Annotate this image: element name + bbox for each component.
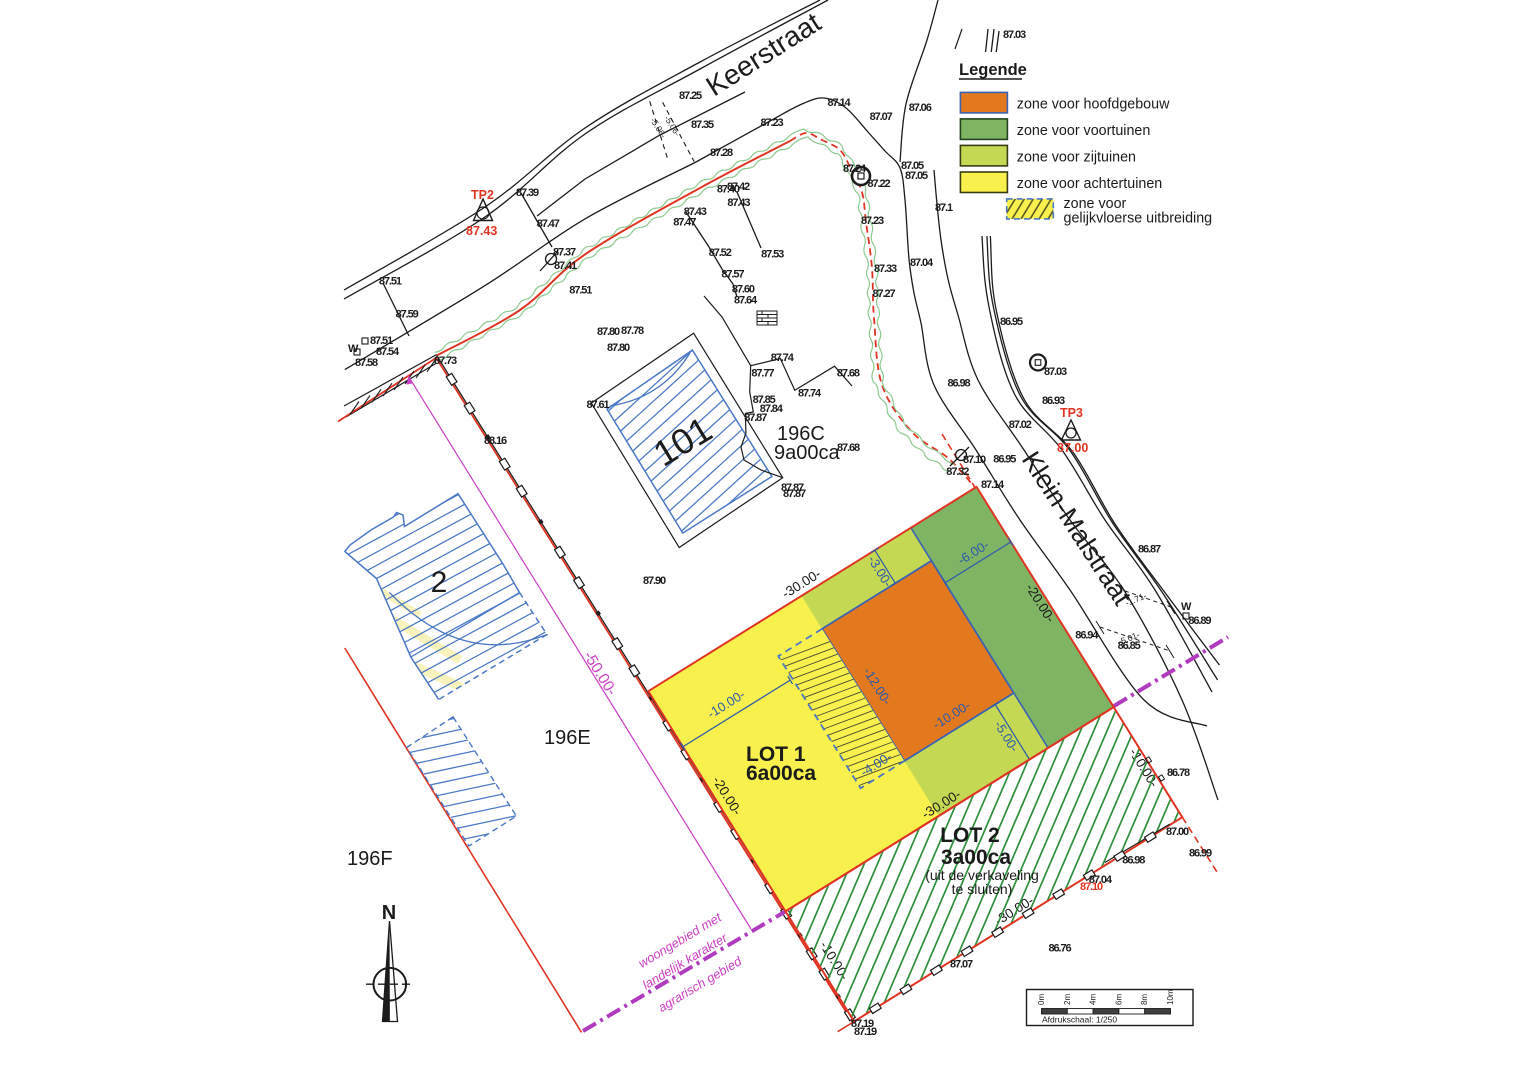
svg-text:87.04: 87.04 [910,257,934,269]
svg-text:87.80: 87.80 [607,342,630,354]
svg-text:10m: 10m [1166,989,1175,1005]
svg-text:87.68: 87.68 [837,442,860,454]
svg-text:87.02: 87.02 [1009,419,1032,431]
svg-text:88.16: 88.16 [484,435,507,447]
svg-text:87.14: 87.14 [981,479,1005,491]
svg-text:196E: 196E [544,727,591,749]
svg-text:87.33: 87.33 [874,263,897,275]
svg-text:87.07: 87.07 [950,958,973,970]
svg-text:87.41: 87.41 [554,260,577,272]
svg-text:W: W [1181,601,1192,613]
svg-text:87.74: 87.74 [798,388,822,400]
svg-text:87.07: 87.07 [870,111,893,123]
svg-text:9a00ca: 9a00ca [774,442,840,464]
svg-text:87.54: 87.54 [376,346,400,358]
svg-text:87.53: 87.53 [761,248,784,260]
svg-text:87.23: 87.23 [861,215,884,227]
svg-text:87.03: 87.03 [1003,29,1026,41]
svg-text:87.64: 87.64 [734,294,758,306]
svg-text:87.10: 87.10 [963,454,986,466]
svg-text:86.95: 86.95 [1000,316,1023,328]
svg-text:87.05: 87.05 [905,170,928,182]
svg-text:87.03: 87.03 [1044,366,1067,378]
svg-text:87.22: 87.22 [868,178,891,190]
svg-text:87.25: 87.25 [679,90,702,102]
svg-text:87.57: 87.57 [721,269,744,281]
svg-text:gelijkvloerse uitbreiding: gelijkvloerse uitbreiding [1064,211,1213,227]
svg-text:86.85: 86.85 [1118,640,1141,652]
svg-text:87.28: 87.28 [710,147,733,159]
svg-text:87.51: 87.51 [379,275,402,287]
svg-text:Legende: Legende [959,61,1027,79]
svg-text:87.51: 87.51 [569,284,592,296]
svg-text:2: 2 [431,566,448,599]
svg-text:2m: 2m [1063,994,1072,1005]
svg-text:87.1: 87.1 [935,202,953,214]
svg-text:87.80: 87.80 [597,326,620,338]
svg-text:87.87: 87.87 [783,488,806,500]
svg-text:86.99: 86.99 [1189,848,1212,860]
svg-text:87.35: 87.35 [691,119,714,131]
svg-text:87.23: 87.23 [761,117,784,129]
svg-text:3a00ca: 3a00ca [941,846,1011,869]
svg-text:87.24: 87.24 [843,163,867,175]
svg-text:87.39: 87.39 [516,187,539,199]
svg-text:87.14: 87.14 [828,97,852,109]
svg-text:86.78: 86.78 [1167,767,1190,779]
svg-text:87.47: 87.47 [673,217,696,229]
svg-text:87.47: 87.47 [537,218,560,230]
svg-text:6m: 6m [1114,994,1123,1005]
svg-text:87.78: 87.78 [621,325,644,337]
svg-text:87.27: 87.27 [873,288,896,300]
svg-text:87.52: 87.52 [709,247,732,259]
svg-text:Afdrukschaal: 1/250: Afdrukschaal: 1/250 [1042,1015,1117,1025]
svg-text:87.61: 87.61 [587,399,610,411]
svg-text:87.74: 87.74 [771,352,795,364]
svg-text:87.77: 87.77 [751,368,774,380]
svg-text:86.98: 86.98 [948,377,971,389]
svg-text:LOT 2: LOT 2 [940,824,1000,847]
svg-text:6a00ca: 6a00ca [746,762,816,785]
svg-text:86.76: 86.76 [1049,943,1072,955]
svg-text:87.68: 87.68 [837,368,860,380]
svg-text:zone voor voortuinen: zone voor voortuinen [1017,123,1151,139]
svg-text:87.19: 87.19 [854,1026,877,1038]
svg-text:86.94: 86.94 [1075,629,1099,641]
svg-text:86.87: 86.87 [1138,544,1161,556]
svg-text:zone voor achtertuinen: zone voor achtertuinen [1017,176,1162,192]
svg-text:8m: 8m [1140,994,1149,1005]
svg-text:87.59: 87.59 [396,309,419,321]
svg-text:86.98: 86.98 [1122,855,1145,867]
svg-text:87.43: 87.43 [466,224,497,238]
svg-text:87.42: 87.42 [727,181,750,193]
svg-text:86.95: 86.95 [993,454,1016,466]
svg-text:86.93: 86.93 [1042,395,1065,407]
svg-text:87.43: 87.43 [727,197,750,209]
svg-text:te sluiten): te sluiten) [952,881,1013,897]
svg-text:87.10: 87.10 [1080,881,1103,893]
svg-text:87.87: 87.87 [744,412,767,424]
svg-text:zone voor hoofdgebouw: zone voor hoofdgebouw [1017,97,1170,113]
svg-text:0m: 0m [1037,994,1046,1005]
svg-text:N: N [382,902,396,924]
svg-text:87.73: 87.73 [434,355,457,367]
svg-text:zone voor zijtuinen: zone voor zijtuinen [1017,150,1136,166]
svg-text:87.00: 87.00 [1057,441,1088,455]
svg-text:4m: 4m [1089,994,1098,1005]
svg-text:196F: 196F [347,848,393,870]
svg-text:TP2: TP2 [471,188,494,202]
svg-text:87.90: 87.90 [643,575,666,587]
svg-text:87.37: 87.37 [553,247,576,259]
svg-text:86.89: 86.89 [1188,615,1211,627]
svg-text:87.58: 87.58 [355,357,378,369]
svg-text:87.06: 87.06 [909,102,932,114]
svg-text:87.00: 87.00 [1166,826,1189,838]
svg-text:TP3: TP3 [1060,406,1083,420]
svg-text:87.32: 87.32 [946,466,969,478]
